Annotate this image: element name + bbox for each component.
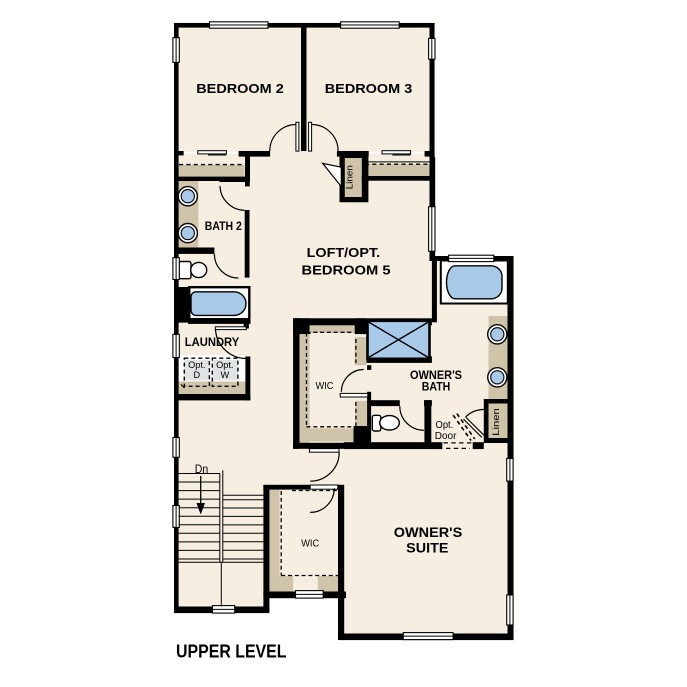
svg-text:LOFT/OPT.: LOFT/OPT. <box>307 245 381 260</box>
svg-text:BATH: BATH <box>422 380 451 394</box>
svg-text:Opt.: Opt. <box>216 360 233 370</box>
svg-text:UPPER LEVEL: UPPER LEVEL <box>176 641 287 662</box>
svg-text:SUITE: SUITE <box>406 540 448 555</box>
svg-text:Linen: Linen <box>491 408 502 436</box>
svg-text:OWNER'S: OWNER'S <box>394 525 463 540</box>
svg-text:LAUNDRY: LAUNDRY <box>185 335 240 349</box>
svg-text:BEDROOM 2: BEDROOM 2 <box>196 81 284 96</box>
svg-text:BEDROOM 5: BEDROOM 5 <box>302 263 391 278</box>
svg-text:Dn: Dn <box>195 464 209 476</box>
svg-text:BEDROOM 3: BEDROOM 3 <box>325 81 413 96</box>
svg-text:Opt.: Opt. <box>188 360 205 370</box>
svg-text:Opt.: Opt. <box>436 419 454 431</box>
svg-text:BATH 2: BATH 2 <box>205 219 242 233</box>
svg-text:W: W <box>220 370 229 380</box>
svg-text:Door: Door <box>435 430 457 442</box>
svg-text:WIC: WIC <box>316 380 334 392</box>
svg-text:D: D <box>193 370 200 380</box>
svg-text:WIC: WIC <box>301 537 319 549</box>
svg-text:Linen: Linen <box>345 165 356 189</box>
